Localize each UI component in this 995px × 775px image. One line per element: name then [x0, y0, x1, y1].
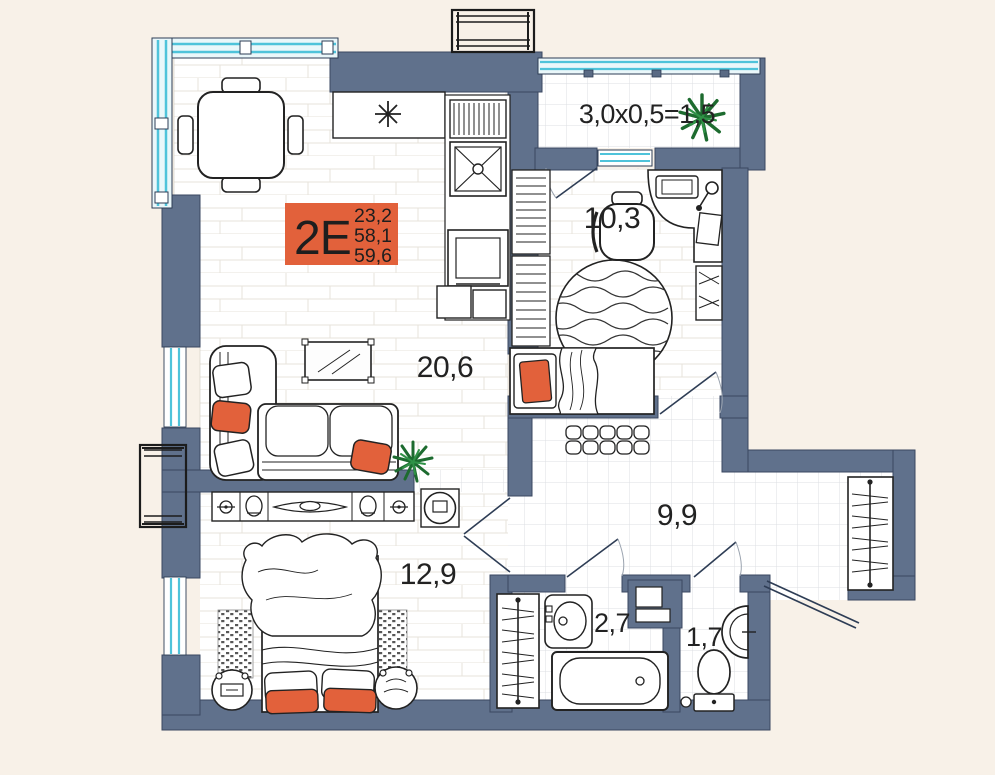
- kitchen-counter: [333, 92, 445, 138]
- kitchen-sink: [450, 142, 506, 196]
- shelf-unit: [512, 170, 550, 346]
- bathtub: [552, 652, 668, 710]
- floor-plan-page: 2E 23,2 58,1 59,6: [0, 0, 995, 775]
- bed-duvet: [242, 534, 381, 636]
- room-label-wc: 1,7: [686, 622, 722, 652]
- bed-pillow-orange: [519, 360, 551, 403]
- window-left-living: [164, 347, 186, 427]
- area-living-value: 23,2: [354, 205, 392, 227]
- ac-basket-top: [452, 10, 534, 52]
- area-main-value: 58,1: [354, 225, 392, 247]
- papers: [696, 213, 721, 245]
- single-bed: [510, 348, 654, 414]
- kitchen-base-cabinets: [437, 286, 506, 318]
- sofa-pillow-orange: [211, 400, 252, 434]
- oven: [448, 230, 508, 286]
- hall-wardrobe: [848, 477, 893, 590]
- drainer-icon: [450, 100, 506, 138]
- balcony-glazing-top-right: [538, 58, 760, 77]
- nightstand-left: [212, 670, 252, 710]
- room-label-living: 20,6: [417, 351, 473, 384]
- bath-sink: [545, 595, 592, 648]
- room-label-bathroom: 2,7: [594, 608, 630, 638]
- window-left-bedroom: [164, 577, 186, 655]
- room-label-bedroom-small: 10,3: [584, 202, 640, 235]
- dresser: [212, 492, 414, 521]
- unit-type-badge: 2E 23,2 58,1 59,6: [285, 203, 398, 267]
- bath-closet: [497, 594, 539, 708]
- room-label-balcony: 3,0x0,5=1,5: [579, 99, 715, 129]
- sofa-throw-orange: [350, 439, 393, 475]
- room-label-hallway: 9,9: [657, 499, 697, 532]
- area-total-value: 59,6: [354, 245, 392, 267]
- unit-type-label: 2E: [294, 212, 351, 265]
- washing-machine-icon: [421, 489, 459, 527]
- bed-pillow-orange-left: [266, 689, 319, 714]
- nightstand-right: [375, 667, 417, 709]
- sofa-pillow-white-2: [213, 439, 255, 478]
- sofa-pillow-white: [212, 362, 252, 399]
- double-bed: [242, 534, 381, 714]
- bed-blanket: [559, 348, 598, 414]
- bedside-rug-left: [218, 610, 253, 678]
- coffee-table: [302, 339, 374, 383]
- floor-plan: 2E 23,2 58,1 59,6: [0, 0, 995, 775]
- wardrobe-small: [696, 266, 722, 320]
- laptop-icon: [656, 176, 698, 198]
- bed-pillow-orange-right: [324, 688, 377, 713]
- room-label-bedroom-master: 12,9: [400, 558, 456, 591]
